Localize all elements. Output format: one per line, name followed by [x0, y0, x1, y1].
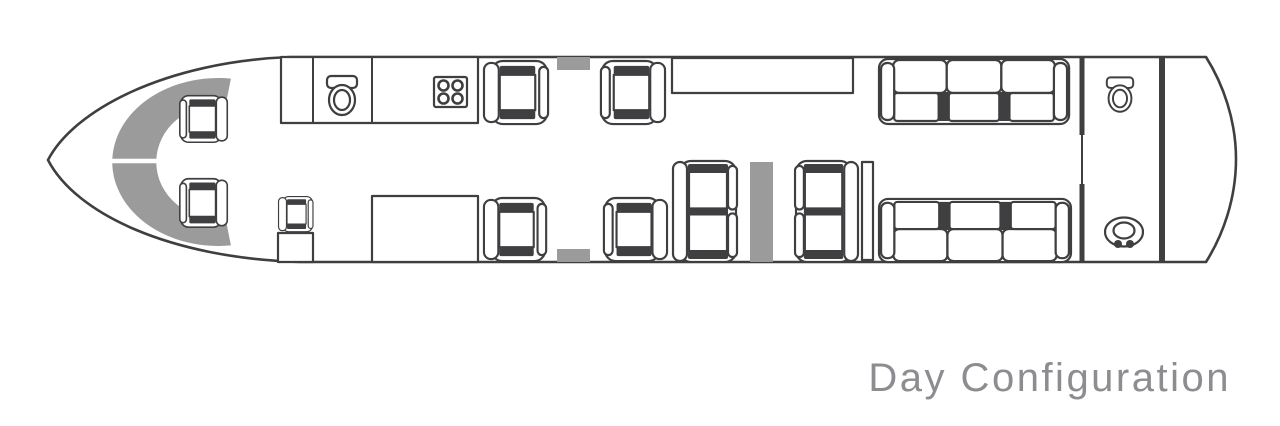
emergency-exit-marker-top: [557, 57, 590, 70]
three-seat-sofa-bottom: [879, 199, 1071, 262]
caption: Day Configuration: [868, 356, 1231, 400]
aft-lav-wall-upper: [1080, 58, 1085, 135]
forward-monument: [281, 57, 478, 123]
pilot-seat-right: [180, 179, 227, 227]
club-seat-fwd-top-right: [601, 61, 665, 124]
pilot-seat-left: [180, 96, 227, 143]
club-seat-fwd-bottom-left: [484, 198, 546, 261]
three-seat-sofa-top: [879, 59, 1069, 124]
aft-lav-wall-lower: [1080, 184, 1085, 261]
stove-icon: [434, 77, 467, 107]
toilet-icon: [327, 76, 357, 115]
club-seat-fwd-bottom-right: [604, 198, 667, 261]
credenza: [672, 58, 853, 93]
side-panel: [862, 162, 873, 260]
club-seat-fwd-top-left: [484, 61, 548, 124]
mid-cabin-bulkhead: [750, 162, 773, 262]
toilet-icon-aft: [1107, 77, 1133, 111]
aft-partition: [1159, 57, 1165, 262]
forward-cabinet: [372, 196, 478, 262]
emergency-exit-marker-bottom: [557, 249, 590, 262]
cabin-floorplan: Day Configuration: [0, 0, 1280, 426]
jump-seat: [279, 197, 313, 232]
divan-facing-aft: [673, 161, 737, 262]
sink-icon: [1105, 218, 1143, 249]
jump-seat-cabinet: [278, 233, 313, 262]
floorplan-page: Day Configuration: [0, 0, 1280, 426]
divan-facing-forward: [795, 161, 858, 262]
